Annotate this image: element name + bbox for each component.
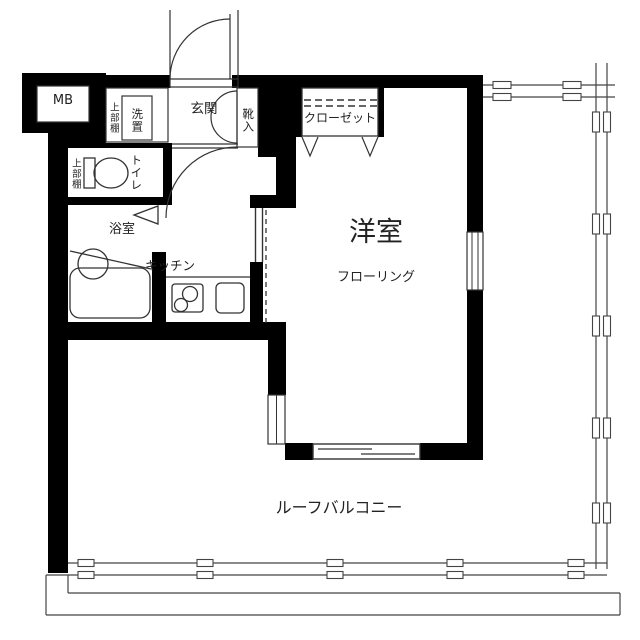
laundry-upper-shelf-label: 上部棚 (107, 97, 118, 139)
western-room-label: 洋室 (330, 217, 422, 248)
kitchen-sink (216, 283, 244, 313)
toilet-fixture (84, 158, 128, 188)
bathroom-door-mark (134, 206, 158, 224)
toilet-upper-shelf-label: 上部棚 (69, 155, 80, 193)
toilet-label: トイレ (129, 152, 142, 194)
meter-box-label: MB (37, 94, 89, 109)
flooring-label: フローリング (330, 271, 422, 286)
entrance-label: 玄関 (176, 102, 232, 118)
shoe-cabinet-label: 靴入 (241, 100, 254, 140)
kitchen-label: キッチン (141, 259, 199, 273)
closet-door-mark-1 (302, 137, 318, 156)
closet-door-mark-2 (362, 137, 378, 156)
floorplan-drawing (0, 0, 640, 640)
bathtub (70, 268, 150, 318)
burner-2 (175, 299, 188, 312)
hall-door-arc (166, 147, 237, 218)
kitchen-fixtures (166, 277, 250, 313)
closet-label: クローゼット (302, 112, 378, 126)
bathroom-label: 浴室 (96, 223, 148, 238)
roof-balcony-label: ルーフバルコニー (253, 499, 425, 517)
laundry-space-label: 洗置 (130, 103, 143, 137)
shoe-cabinet-door-arc-bottom (211, 117, 237, 143)
bath-sink (78, 249, 108, 279)
windows (268, 232, 483, 459)
entrance-door-arc (170, 19, 230, 79)
floorplan: MB 上部棚 洗置 玄関 靴入 クローゼット 上部棚 トイレ 浴室 キッチン 洋… (0, 0, 640, 640)
walls (22, 73, 483, 573)
